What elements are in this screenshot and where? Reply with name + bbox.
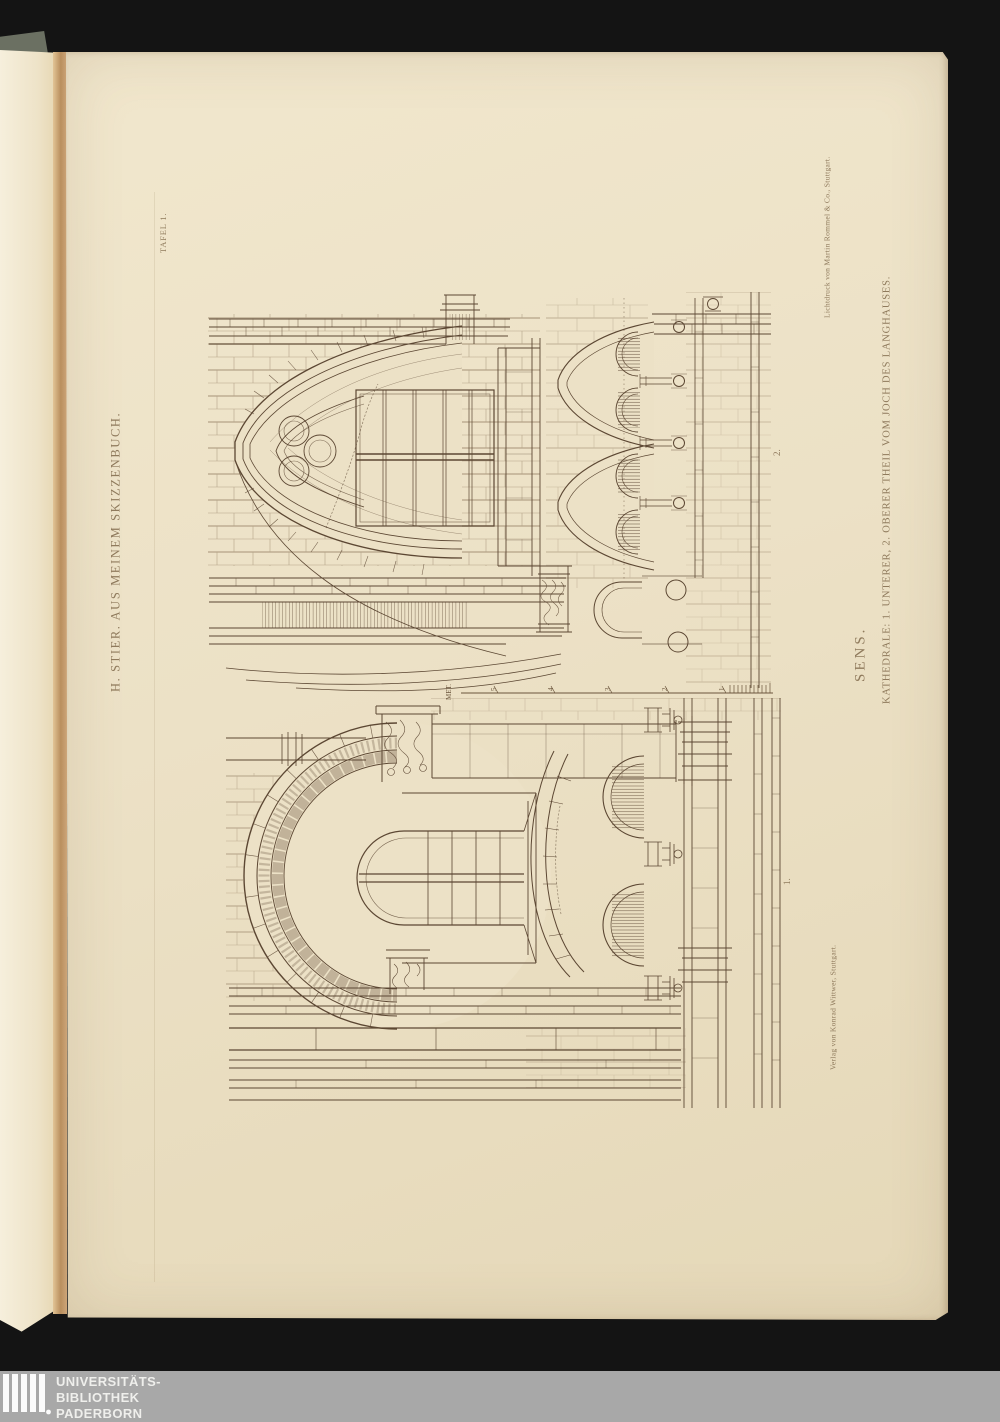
scanned-book-photo: { "plate": { "tafel_label": "TAFEL 1.", … <box>0 0 1000 1422</box>
scale-tick-5: 5 <box>490 687 498 691</box>
watermark-band: UNIVERSITÄTS- BIBLIOTHEK PADERBORN <box>0 1371 1000 1422</box>
page-gutter-fold <box>53 52 67 1314</box>
plate-page: H. STIER. AUS MEINEM SKIZZENBUCH. TAFEL … <box>66 52 948 1320</box>
scale-tick-1: 1 <box>718 687 726 691</box>
watermark-line-3: PADERBORN <box>56 1406 161 1422</box>
watermark-line-1: UNIVERSITÄTS- <box>56 1374 161 1390</box>
scale-tick-4: 4 <box>547 687 555 691</box>
scale-tick-3: 3 <box>604 687 612 691</box>
scale-tick-2: 2 <box>661 687 669 691</box>
facing-page-edge <box>0 50 54 1342</box>
library-logo-icon <box>2 1371 56 1422</box>
handwritten-note-lower <box>556 806 561 914</box>
lower-drawing-lines <box>226 698 781 1108</box>
figure-lower-drawing <box>226 698 786 1108</box>
watermark-text: UNIVERSITÄTS- BIBLIOTHEK PADERBORN <box>56 1374 161 1422</box>
figure-upper-drawing <box>206 292 771 692</box>
platemark-line <box>154 192 155 1282</box>
watermark-line-2: BIBLIOTHEK <box>56 1390 161 1406</box>
upper-drawing-lines <box>208 292 771 691</box>
